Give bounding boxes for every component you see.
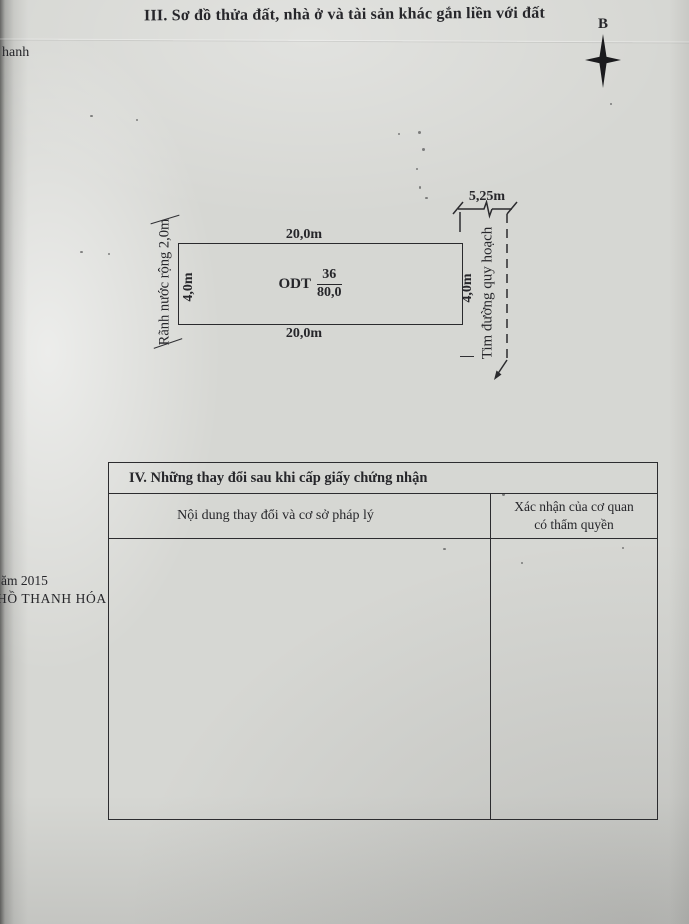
- compass-north-label: B: [581, 16, 625, 33]
- dimension-right: 4,0m: [460, 273, 476, 302]
- parcel-area: 80,0: [317, 285, 342, 301]
- changes-table-header-row: Nội dung thay đổi và cơ sở pháp lý Xác n…: [109, 494, 657, 539]
- paper-speck: [425, 197, 428, 199]
- paper-speck: [521, 562, 523, 564]
- paper-speck: [622, 547, 624, 549]
- parcel-label: ODT 36 80,0: [262, 265, 358, 303]
- changes-table-empty-body: [109, 539, 657, 819]
- paper-speck: [419, 186, 421, 189]
- edge-text-fragment: hanh: [2, 45, 29, 61]
- edge-text-year: ăm 2015: [1, 573, 48, 589]
- paper-speck: [422, 148, 425, 151]
- paper-speck: [80, 251, 83, 253]
- dimension-left: 4,0m: [181, 272, 197, 301]
- parcel-number: 36: [317, 268, 342, 285]
- column-header-confirmation: Xác nhận của cơ quan có thẩm quyền: [491, 494, 657, 538]
- edge-text-city: HỒ THANH HÓA: [0, 591, 107, 607]
- paper-speck: [502, 493, 505, 496]
- paper-speck: [418, 131, 421, 134]
- centerline-tick: [460, 356, 474, 357]
- column-header-confirmation-line1: Xác nhận của cơ quan: [491, 498, 657, 516]
- paper-speck: [108, 253, 110, 255]
- paper-speck: [136, 119, 138, 121]
- changes-table-title-row: IV. Những thay đổi sau khi cấp giấy chứn…: [109, 463, 657, 494]
- dimension-top: 20,0m: [244, 227, 364, 243]
- certificate-page: III. Sơ đồ thửa đất, nhà ở và tài sản kh…: [0, 0, 689, 924]
- paper-speck: [398, 133, 400, 135]
- land-use-code: ODT: [278, 276, 311, 293]
- dimension-bottom: 20,0m: [244, 326, 364, 342]
- paper-speck: [610, 103, 612, 105]
- paper-speck: [443, 548, 446, 550]
- road-centerline: [490, 212, 516, 384]
- changes-table: IV. Những thay đổi sau khi cấp giấy chứn…: [108, 462, 658, 820]
- compass-star-icon: [581, 34, 625, 90]
- section-iv-title: IV. Những thay đổi sau khi cấp giấy chứn…: [129, 470, 427, 487]
- column-header-content: Nội dung thay đổi và cơ sở pháp lý: [109, 494, 491, 538]
- paper-speck: [90, 115, 93, 117]
- column-header-confirmation-line2: có thẩm quyền: [491, 516, 657, 534]
- paper-speck: [416, 168, 418, 170]
- parcel-number-area-fraction: 36 80,0: [317, 268, 342, 300]
- compass-rose: B: [581, 16, 625, 90]
- left-feature-label: Rãnh nước rộng 2,0m: [157, 219, 174, 346]
- table-column-divider: [490, 539, 492, 819]
